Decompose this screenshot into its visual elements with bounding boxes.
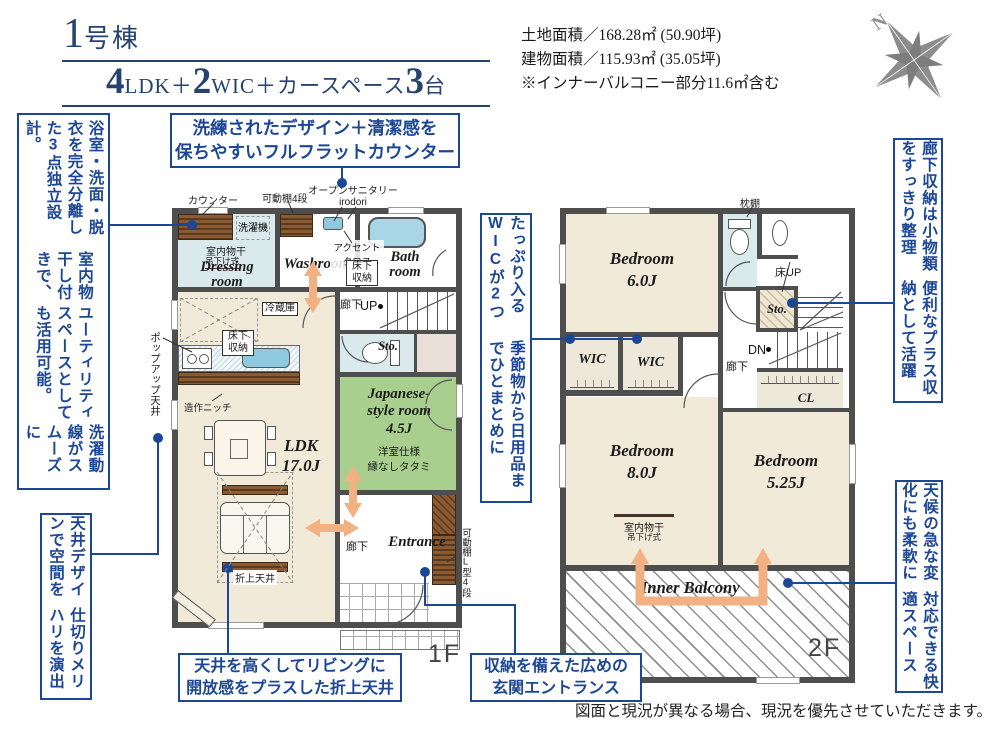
carspace-text: WIC＋カースペース xyxy=(211,70,405,100)
callout-two-wic: たっぷり入るWICが2つ 季節物から日用品までひとまとめに xyxy=(480,213,532,503)
bath-room-label: Bath room xyxy=(374,250,436,280)
floor1-plan: 洗濯機 xyxy=(172,208,462,628)
kitchen-counter-front xyxy=(178,372,300,385)
jp-line: style room xyxy=(350,403,448,420)
header-divider-bottom xyxy=(62,105,490,107)
drying-bar xyxy=(614,514,674,517)
wic-count: 2 xyxy=(193,60,212,103)
bedroom8-label: Bedroom 8.0J xyxy=(587,440,697,484)
ldk-text: LDK＋ xyxy=(125,70,193,100)
window-mark xyxy=(606,207,650,214)
wall xyxy=(414,334,417,372)
callout-line: 季節物から日用品までひとまとめに xyxy=(485,340,527,501)
callout-line: 対応できる快適スペース xyxy=(898,591,940,691)
pillow-shelf-label: 枕棚 xyxy=(740,195,760,210)
building-area: 建物面積／115.93㎡ (35.05坪) xyxy=(521,48,780,72)
window-mark xyxy=(456,384,463,418)
bedroom6-label: Bedroom 6.0J xyxy=(587,248,697,292)
sanitary-line: オープンサニタリー xyxy=(308,182,398,197)
bath-line: Bath xyxy=(374,250,436,265)
wall xyxy=(678,337,683,390)
wall xyxy=(723,408,849,412)
washer-space: 洗濯機 xyxy=(236,216,270,240)
bed525-line: 5.25J xyxy=(732,472,840,494)
sanitary-sink xyxy=(323,217,343,230)
wall xyxy=(566,565,849,571)
callout-flat-counter: 洗練されたデザイン＋清潔感を 保ちやすいフルフラットカウンター xyxy=(170,113,460,168)
wic-hanger xyxy=(628,380,674,388)
wall xyxy=(566,332,723,337)
window-mark xyxy=(388,207,424,214)
sofa-line xyxy=(243,515,244,553)
open-sanitary-label: オープンサニタリー irodori xyxy=(308,182,398,208)
window-mark xyxy=(208,622,264,629)
niche-label: 造作ニッチ xyxy=(184,400,232,414)
callout-line: 保ちやすいフルフラットカウンター xyxy=(175,141,455,165)
wash-basin-2f xyxy=(772,220,788,246)
wall xyxy=(335,292,340,622)
dressing-room-label: Dressing room xyxy=(180,260,274,289)
corridor-label-2f: 廊下 xyxy=(725,358,749,374)
sanitary-line: irodori xyxy=(308,197,398,208)
callout-line: たっぷり入るWICが2つ xyxy=(485,215,527,340)
callout-line: 玄関エントランス xyxy=(492,678,620,700)
toilet-bowl-2f xyxy=(730,229,749,255)
genkan-tile xyxy=(337,583,429,622)
stairs-1f xyxy=(378,290,456,330)
bed8-line: Bedroom xyxy=(587,440,697,462)
car-count: 3 xyxy=(405,60,424,103)
tatami-note-label: 洋室仕様 縁なしタタミ xyxy=(362,444,436,474)
sto-label-1f: Sto. xyxy=(364,339,412,354)
window-mark xyxy=(756,677,800,684)
callout-line: 廊下収納は小物類をすっきり整理 xyxy=(897,140,939,280)
table-center xyxy=(230,439,248,459)
tatami-line: 縁なしタタミ xyxy=(362,459,436,474)
shelf4-label: 可動棚4段 xyxy=(262,190,308,205)
window-mark xyxy=(559,244,566,284)
ufs-line: 床下 xyxy=(225,331,251,343)
callout-line: 天井を高くしてリビングに xyxy=(194,656,386,678)
wall xyxy=(340,372,456,377)
wall xyxy=(718,214,723,332)
tatami-line: 洋室仕様 xyxy=(362,444,436,459)
area-info: 土地面積／168.28㎡ (50.90坪) 建物面積／115.93㎡ (35.0… xyxy=(521,24,780,96)
japanese-room-label: Japanese- style room 4.5J xyxy=(350,386,448,438)
callout-line: 開放感をプラスした折上天井 xyxy=(186,678,394,700)
wic2-label: WIC xyxy=(623,355,678,371)
floor-up-label: 床UP xyxy=(774,264,802,280)
layout-summary: 4 LDK＋ 2 WIC＋カースペース 3 台 xyxy=(70,60,482,104)
wall xyxy=(718,332,723,565)
shoe-cabinet-upper xyxy=(432,490,456,535)
window-mark xyxy=(559,444,566,488)
area-note: ※インナーバルコニー部分11.6㎡含む xyxy=(521,72,780,96)
stairs-2f-lower xyxy=(768,332,843,368)
floor2-label: 2F xyxy=(808,634,841,663)
jp-line: 4.5J xyxy=(350,421,448,438)
bedroom525-label: Bedroom 5.25J xyxy=(732,450,840,494)
wall xyxy=(275,214,280,287)
toilet-tank-2f xyxy=(728,219,751,229)
callout-ceiling-zoning: 天井デザインで空間を 仕切りメリハリを演出 xyxy=(40,513,92,700)
dressing-line: Dressing xyxy=(180,260,274,275)
callout-coffered-ceiling: 天井を高くしてリビングに 開放感をプラスした折上天井 xyxy=(178,653,402,702)
dressing-line: room xyxy=(180,275,274,290)
corridor-label-1f: 廊下 xyxy=(340,296,362,312)
underfloor-storage-label-2: 床下 収納 xyxy=(222,330,254,356)
corridor-label-entrance: 廊下 xyxy=(346,538,368,554)
burner xyxy=(187,354,197,364)
floorplan-flyer: 1号棟 4 LDK＋ 2 WIC＋カースペース 3 台 土地面積／168.28㎡… xyxy=(0,0,1000,752)
wall xyxy=(757,214,762,259)
popup-ceiling-label: ポップアップ天井 xyxy=(148,332,163,436)
washroom-shelf xyxy=(280,214,313,237)
closet-hanger xyxy=(761,376,839,384)
wall xyxy=(757,368,843,372)
hanging-type-label-2f: 吊下げ式 xyxy=(622,531,666,543)
ldk-label: LDK 17.0J xyxy=(268,436,334,477)
ldk-count: 4 xyxy=(106,60,125,103)
up-label: UP xyxy=(360,299,377,313)
callout-separate-bath: 浴室・洗面・脱衣を完全分離した3点独立設計。 室内物干し付きで、 ユーティリティ… xyxy=(17,113,110,490)
washer-label: 洗濯機 xyxy=(238,223,268,234)
ldk-line: 17.0J xyxy=(268,456,334,476)
land-area: 土地面積／168.28㎡ (50.90坪) xyxy=(521,24,780,48)
ufs-line: 床下 xyxy=(349,261,375,273)
disclaimer: 図面と現況が異なる場合、現況を優先させていただきます。 xyxy=(480,699,992,721)
callout-line: 天井デザインで空間を xyxy=(45,515,87,607)
wall xyxy=(340,330,456,334)
coffered-ceiling-label: 折上天井 xyxy=(233,570,277,585)
sofa-line xyxy=(221,515,289,516)
stairs-2f-upper xyxy=(798,288,843,332)
building-suffix: 号棟 xyxy=(84,24,140,53)
building-number: 1 xyxy=(63,11,84,57)
shelf-l4-label: 可動棚L型4段 xyxy=(458,528,472,592)
window-mark xyxy=(171,400,178,430)
chair xyxy=(204,452,213,466)
sofa xyxy=(220,502,290,554)
wic1-label: WIC xyxy=(566,352,618,368)
compass-icon: N xyxy=(858,8,970,116)
sto-label-2f: Sto. xyxy=(756,302,798,317)
bed8-line: 8.0J xyxy=(587,462,697,484)
floor2-plan: Bedroom 6.0J 床UP Sto. DN 廊下 WIC WIC CL B… xyxy=(560,208,855,683)
counter-label: カウンター xyxy=(188,192,238,207)
callout-line: ユーティリティスペースとしても活用可能。 xyxy=(32,305,95,424)
ldk-line: LDK xyxy=(268,436,334,456)
up-dot xyxy=(378,304,383,309)
callout-line: 便利なプラス収納として活躍 xyxy=(897,280,939,401)
bed525-line: Bedroom xyxy=(732,450,840,472)
jp-line: Japanese- xyxy=(350,386,448,403)
bed6-line: Bedroom xyxy=(587,248,697,270)
dining-table xyxy=(214,420,266,476)
ufs-line: 収納 xyxy=(349,273,375,285)
window-mark xyxy=(171,300,178,330)
bath-line: room xyxy=(374,265,436,280)
sofa-line xyxy=(266,515,267,553)
ufs-line: 収納 xyxy=(225,343,251,355)
dn-dot xyxy=(766,347,771,352)
wic-hanger xyxy=(570,380,614,388)
counter-top xyxy=(178,214,233,240)
closet-label: CL xyxy=(786,390,826,406)
stove xyxy=(182,348,212,369)
callout-line: 仕切りメリハリを演出 xyxy=(45,607,87,699)
chair xyxy=(204,426,213,440)
callout-line: 室内物干し付きで、 xyxy=(32,251,95,304)
wall xyxy=(340,490,456,495)
callout-hall-storage: 廊下収納は小物類をすっきり整理 便利なプラス収納として活躍 xyxy=(893,138,943,403)
burner xyxy=(199,354,209,364)
compass-north-label: N xyxy=(868,10,892,35)
callout-genkan-storage: 収納を備えた広めの 玄関エントランス xyxy=(470,653,642,702)
storage-room-1f xyxy=(417,334,456,372)
wall xyxy=(723,287,757,291)
callout-line: 浴室・洗面・脱衣を完全分離した3点独立設計。 xyxy=(22,120,106,251)
wall xyxy=(762,255,798,259)
callout-inner-balcony: 天候の急な変化にも柔軟に 対応できる快適スペース xyxy=(895,480,943,693)
dn-label: DN xyxy=(747,343,767,357)
window-mark xyxy=(849,444,856,484)
window-mark xyxy=(198,207,228,214)
inner-balcony-label: Inner Balcony xyxy=(641,578,740,598)
building-title: 1号棟 xyxy=(63,10,140,58)
callout-line: 洗練されたデザイン＋清潔感を xyxy=(193,117,438,141)
entrance-label: Entrance xyxy=(380,534,454,551)
callout-line: 洗濯動線がスムーズに xyxy=(22,424,106,483)
car-unit: 台 xyxy=(424,70,446,100)
wall xyxy=(566,390,683,396)
tv-board xyxy=(222,485,288,495)
floor1-label: 1F xyxy=(428,640,461,669)
fridge-label: 冷蔵庫 xyxy=(262,302,298,316)
bed6-line: 6.0J xyxy=(587,270,697,292)
callout-line: 収納を備えた広めの xyxy=(484,656,628,678)
callout-line: 天候の急な変化にも柔軟に xyxy=(898,482,940,591)
